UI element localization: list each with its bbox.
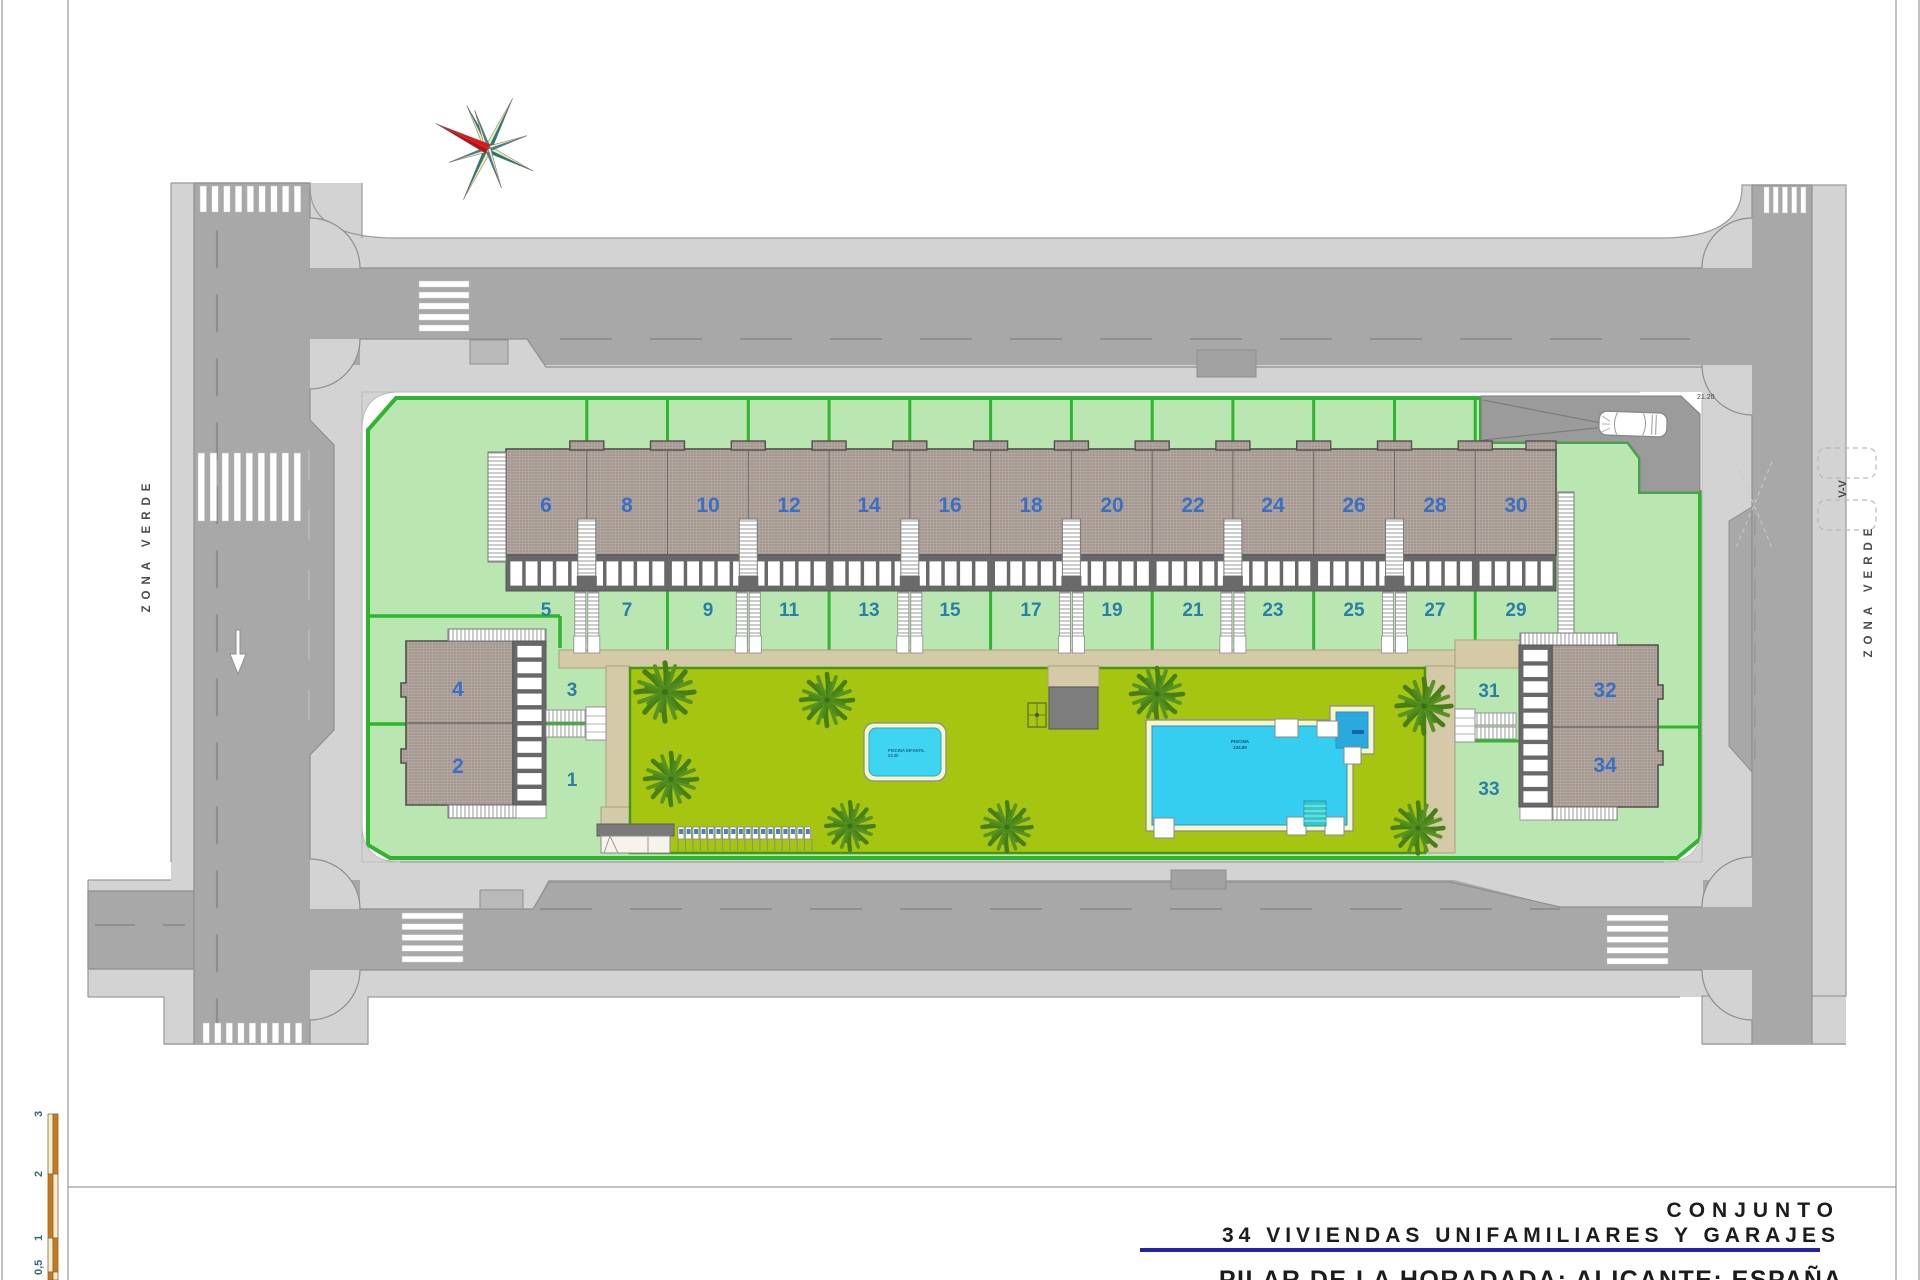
svg-text:13: 13 — [858, 600, 879, 621]
svg-text:21.20: 21.20 — [1697, 394, 1715, 401]
svg-text:23: 23 — [1262, 600, 1283, 621]
svg-text:5: 5 — [541, 600, 552, 621]
svg-text:25: 25 — [1343, 600, 1365, 621]
svg-text:2: 2 — [452, 755, 464, 778]
svg-text:19: 19 — [1101, 600, 1122, 621]
svg-text:1: 1 — [567, 770, 578, 791]
svg-text:30: 30 — [1504, 494, 1527, 517]
svg-text:27: 27 — [1424, 600, 1445, 621]
svg-text:14: 14 — [857, 494, 881, 517]
svg-text:20: 20 — [1100, 494, 1123, 517]
svg-text:24: 24 — [1261, 494, 1285, 517]
svg-text:ZONA VERDE: ZONA VERDE — [1863, 523, 1875, 658]
svg-text:4: 4 — [452, 678, 464, 701]
svg-text:34 VIVIENDAS UNIFAMILIARES Y G: 34 VIVIENDAS UNIFAMILIARES Y GARAJES — [1222, 1224, 1840, 1247]
svg-text:8: 8 — [621, 494, 633, 517]
svg-text:3: 3 — [567, 680, 578, 701]
svg-text:PILAR DE LA HORADADA; ALICANTE: PILAR DE LA HORADADA; ALICANTE; ESPAÑA — [1219, 1264, 1843, 1280]
svg-text:1: 1 — [33, 1235, 45, 1241]
svg-text:32: 32 — [1593, 679, 1616, 702]
svg-text:12: 12 — [777, 494, 800, 517]
svg-text:26: 26 — [1342, 494, 1365, 517]
svg-text:11: 11 — [779, 600, 800, 621]
svg-text:15: 15 — [939, 600, 961, 621]
svg-text:PISCINA: PISCINA — [1231, 739, 1250, 744]
svg-text:6: 6 — [540, 494, 552, 517]
svg-text:17: 17 — [1020, 600, 1041, 621]
svg-text:3: 3 — [33, 1111, 45, 1117]
svg-text:V-V: V-V — [1837, 479, 1849, 497]
svg-text:CONJUNTO: CONJUNTO — [1667, 1199, 1840, 1222]
svg-text:18: 18 — [1019, 494, 1043, 517]
svg-text:21: 21 — [1182, 600, 1204, 621]
svg-text:134.80: 134.80 — [1233, 745, 1247, 750]
svg-text:22: 22 — [1181, 494, 1204, 517]
svg-text:16: 16 — [938, 494, 961, 517]
svg-text:9: 9 — [703, 600, 714, 621]
svg-text:0,5: 0,5 — [33, 1260, 45, 1275]
svg-text:ZONA VERDE: ZONA VERDE — [141, 478, 153, 613]
svg-text:33: 33 — [1478, 779, 1499, 800]
svg-text:28: 28 — [1423, 494, 1447, 517]
svg-text:34: 34 — [1593, 754, 1617, 777]
svg-text:29: 29 — [1505, 600, 1526, 621]
svg-text:2: 2 — [33, 1171, 45, 1177]
svg-text:7: 7 — [622, 600, 633, 621]
svg-text:10: 10 — [696, 494, 719, 517]
svg-text:31: 31 — [1478, 681, 1500, 702]
svg-text:23.30: 23.30 — [888, 753, 899, 758]
